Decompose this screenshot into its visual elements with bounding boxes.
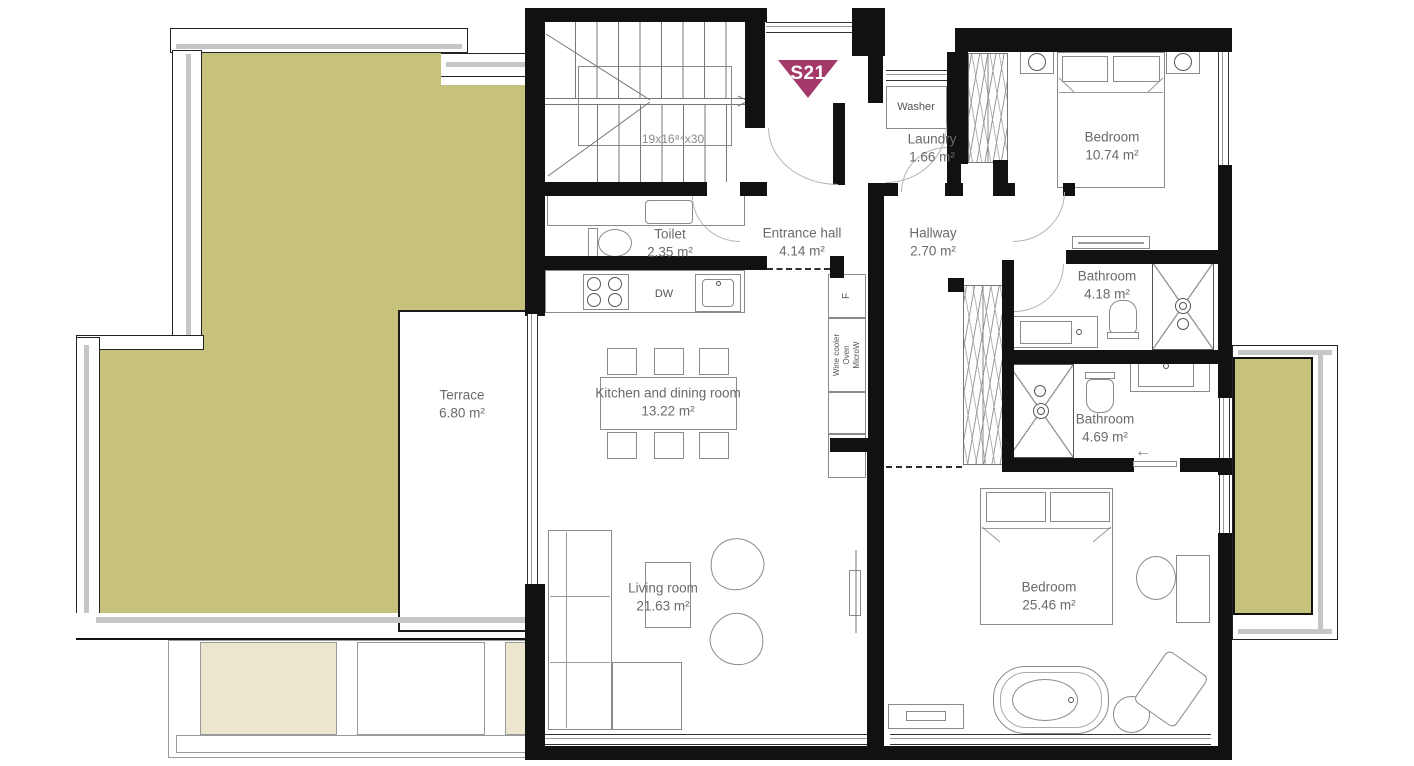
wall-south-bedroom2	[883, 746, 1232, 760]
wall-bathroom-divider	[1014, 350, 1218, 364]
bedroom1-name: Bedroom	[1085, 128, 1140, 146]
wall-bathroom2-bottom-right	[1180, 458, 1218, 472]
room-label-kitchen: Kitchen and dining room 13.22 m²	[595, 384, 741, 419]
living-room-area: 21.63 m²	[628, 597, 698, 615]
wall-kitchen-east	[868, 183, 884, 456]
room-label-laundry: Laundry 1.66 m²	[908, 130, 957, 165]
window-living-south	[545, 734, 867, 745]
room-label-entrance-hall: Entrance hall 4.14 m²	[763, 224, 842, 259]
room-label-terrace: Terrace 6.80 m²	[439, 386, 485, 421]
wall-east-mid	[1218, 165, 1232, 350]
wall-wardrobe-pier	[948, 278, 964, 292]
bedroom2-name: Bedroom	[1022, 578, 1077, 596]
hallway-area: 2.70 m²	[909, 242, 956, 260]
hallway-name: Hallway	[909, 224, 956, 242]
window-bedroom2-south	[890, 734, 1211, 745]
toilet-name: Toilet	[647, 225, 693, 243]
wall-bathroom1-top	[1066, 250, 1218, 264]
wall-bedroom1-step	[993, 160, 1008, 185]
room-label-bedroom1: Bedroom 10.74 m²	[1085, 128, 1140, 163]
entrance-hall-name: Entrance hall	[763, 224, 842, 242]
wall-west-lower	[525, 584, 545, 758]
entrance-hall-area: 4.14 m²	[763, 242, 842, 260]
living-room-name: Living room	[628, 579, 698, 597]
window-bedroom2-east	[1219, 475, 1230, 533]
dishwasher-label: DW	[655, 288, 673, 300]
wall-stair-entrance	[745, 8, 765, 128]
stairs-dimension-label: 19x16⁸⁴x30	[642, 132, 704, 146]
wall-east-bedroom2	[1218, 533, 1232, 746]
window-bedroom1-east	[1218, 52, 1229, 165]
bathroom1-area: 4.18 m²	[1078, 285, 1137, 303]
floor-plan: 19x16⁸⁴x30 S21	[0, 0, 1414, 766]
bedroom2-area: 25.46 m²	[1022, 596, 1077, 614]
room-label-bathroom1: Bathroom 4.18 m²	[1078, 267, 1137, 302]
wall-south-living	[525, 746, 883, 760]
room-label-hallway: Hallway 2.70 m²	[909, 224, 956, 259]
wall-toilet-door-pier	[740, 182, 767, 196]
bathroom2-area: 4.69 m²	[1076, 428, 1135, 446]
bathroom1-name: Bathroom	[1078, 267, 1137, 285]
window-entrance-top	[766, 22, 852, 33]
kitchen-name: Kitchen and dining room	[595, 384, 741, 402]
annotation-lines	[0, 0, 1414, 766]
wall-east-bathroom2	[1218, 350, 1232, 398]
laundry-name: Laundry	[908, 130, 957, 148]
window-bathroom2-east	[1219, 398, 1230, 458]
window-kitchen-west	[527, 314, 538, 584]
bedroom1-area: 10.74 m²	[1085, 146, 1140, 164]
room-label-bathroom2: Bathroom 4.69 m²	[1076, 410, 1135, 445]
room-label-toilet: Toilet 2.35 m²	[647, 225, 693, 260]
wall-east-pier	[1218, 458, 1232, 475]
bathroom2-name: Bathroom	[1076, 410, 1135, 428]
arrow-left-icon: ←	[1135, 443, 1151, 461]
room-label-bedroom2: Bedroom 25.46 m²	[1022, 578, 1077, 613]
washer-label: Washer	[897, 101, 935, 113]
wall-top-band-right	[955, 28, 1232, 52]
door-leaf-bathroom2	[1133, 461, 1177, 467]
kitchen-area: 13.22 m²	[595, 402, 741, 420]
wall-bedroom1-door-left	[993, 183, 1015, 196]
terrace-name: Terrace	[439, 386, 485, 404]
wall-bathroom2-bottom-left	[1002, 458, 1134, 472]
unit-badge-label: S21	[790, 63, 825, 85]
wall-wardrobe-east	[1002, 260, 1014, 470]
room-label-living-room: Living room 21.63 m²	[628, 579, 698, 614]
toilet-area: 2.35 m²	[647, 243, 693, 261]
window-laundry-top	[886, 70, 947, 81]
wall-laundry-bottom-left	[884, 183, 898, 196]
wall-hall-laundry	[868, 40, 883, 103]
terrace-area: 6.80 m²	[439, 404, 485, 422]
laundry-area: 1.66 m²	[908, 148, 957, 166]
wall-living-bedroom-divider	[867, 438, 884, 760]
wall-toilet-top	[545, 182, 707, 196]
wall-toilet-bottom	[525, 256, 767, 270]
wall-stair-top	[525, 8, 767, 22]
